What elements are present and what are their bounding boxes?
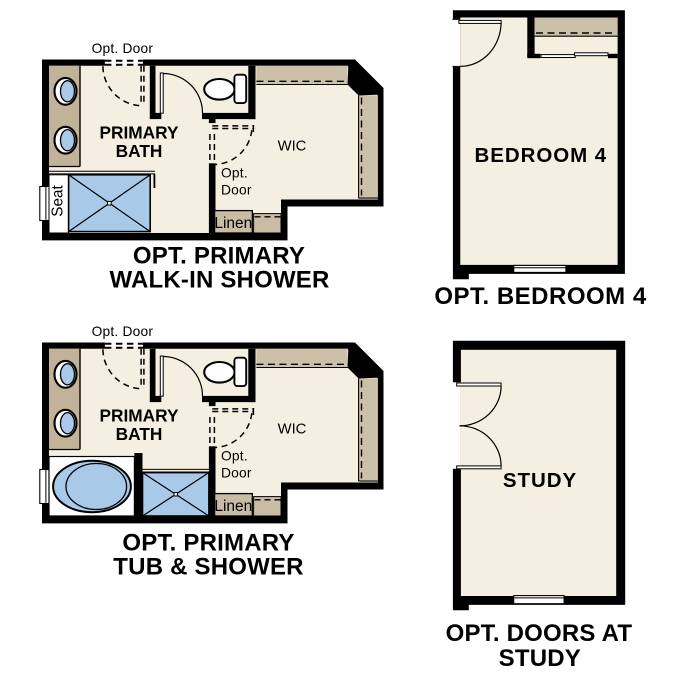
svg-text:Linen: Linen xyxy=(214,498,252,515)
svg-text:Opt. Door: Opt. Door xyxy=(92,41,154,56)
svg-text:Door: Door xyxy=(221,466,252,481)
svg-text:WIC: WIC xyxy=(278,421,307,437)
svg-text:BEDROOM 4: BEDROOM 4 xyxy=(474,144,607,167)
svg-text:TUB & SHOWER: TUB & SHOWER xyxy=(113,554,303,581)
svg-text:BATH: BATH xyxy=(116,424,163,444)
svg-text:OPT. PRIMARY: OPT. PRIMARY xyxy=(133,242,305,269)
svg-text:Linen: Linen xyxy=(214,215,252,232)
svg-text:WALK-IN SHOWER: WALK-IN SHOWER xyxy=(109,266,329,293)
svg-text:Opt.: Opt. xyxy=(221,166,248,181)
svg-text:BATH: BATH xyxy=(116,141,163,161)
svg-text:Opt. Door: Opt. Door xyxy=(92,324,154,339)
svg-text:OPT. BEDROOM 4: OPT. BEDROOM 4 xyxy=(434,283,647,310)
svg-text:Opt.: Opt. xyxy=(221,449,248,464)
svg-text:PRIMARY: PRIMARY xyxy=(99,123,179,143)
svg-text:WIC: WIC xyxy=(278,138,307,154)
svg-text:STUDY: STUDY xyxy=(503,469,577,492)
svg-text:OPT. PRIMARY: OPT. PRIMARY xyxy=(122,530,294,557)
svg-text:Door: Door xyxy=(221,183,252,198)
svg-text:OPT. DOORS AT: OPT. DOORS AT xyxy=(446,620,633,647)
svg-text:PRIMARY: PRIMARY xyxy=(99,406,179,426)
svg-text:Seat: Seat xyxy=(49,185,66,217)
svg-text:STUDY: STUDY xyxy=(499,645,581,672)
